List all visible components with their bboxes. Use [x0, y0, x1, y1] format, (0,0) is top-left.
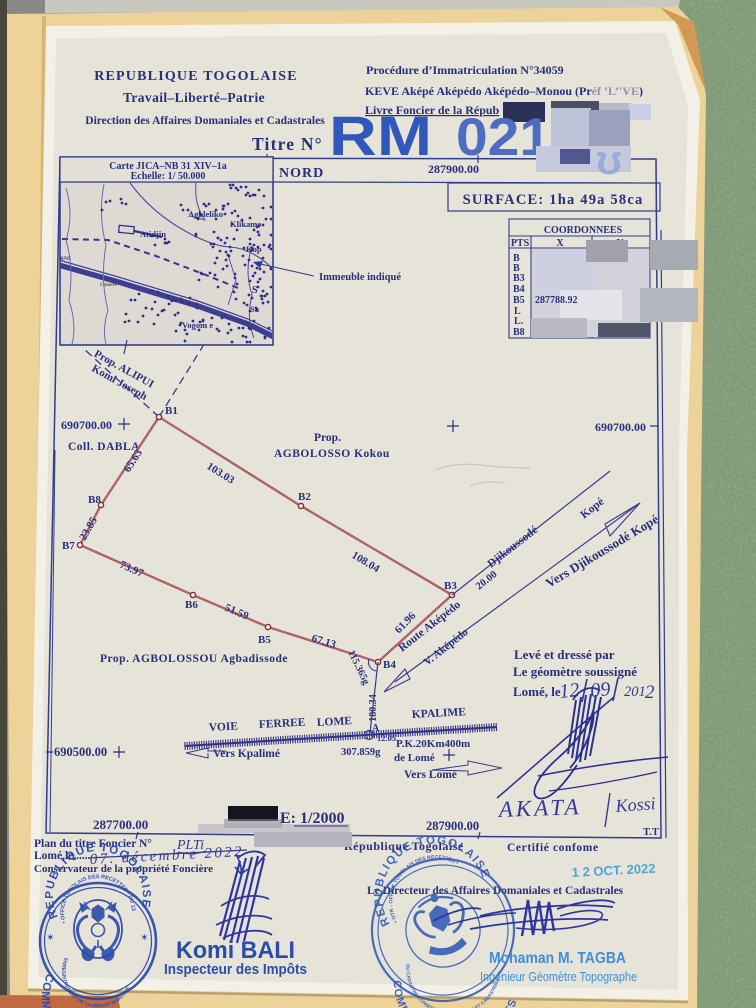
svg-text:B7: B7 [62, 540, 75, 552]
svg-text:287900.00: 287900.00 [426, 819, 479, 833]
svg-text:Kossi: Kossi [614, 793, 656, 816]
svg-text:B4: B4 [383, 659, 396, 671]
svg-text:B6: B6 [185, 599, 198, 611]
svg-text:LOME: LOME [317, 715, 353, 729]
svg-text:B5: B5 [513, 295, 525, 306]
svg-text:B8: B8 [513, 327, 525, 338]
svg-text:690700.00: 690700.00 [61, 418, 112, 432]
svg-text:REPUBLIQUE TOGOLAISE: REPUBLIQUE TOGOLAISE [94, 69, 298, 84]
svg-text:Levé et dressé par: Levé et dressé par [514, 647, 615, 662]
svg-text:✶: ✶ [141, 933, 148, 942]
svg-text:PTS: PTS [511, 238, 530, 249]
svg-text:201: 201 [624, 684, 646, 700]
svg-text:Prop.: Prop. [314, 432, 341, 444]
svg-text:RM: RM [329, 104, 432, 167]
svg-text:VOIE: VOIE [209, 720, 239, 734]
svg-text:12.05: 12.05 [377, 733, 396, 743]
svg-text:287900.00: 287900.00 [428, 162, 479, 176]
svg-text:✶: ✶ [47, 933, 54, 942]
svg-text:Mohaman M. TAGBA: Mohaman M. TAGBA [489, 950, 626, 967]
svg-text:B3: B3 [513, 273, 525, 284]
svg-text:12: 12 [558, 679, 580, 703]
svg-text:307.859g: 307.859g [341, 747, 381, 758]
svg-text:NORD: NORD [279, 166, 324, 181]
svg-text:Lomé, le: Lomé, le [513, 684, 561, 699]
svg-text:Camere: Camere [100, 283, 118, 288]
svg-text:COORDONNEES: COORDONNEES [544, 225, 623, 236]
svg-text:B4: B4 [513, 284, 525, 295]
svg-text:287788.92: 287788.92 [535, 295, 578, 306]
svg-text:Travail–Liberté–Patrie: Travail–Liberté–Patrie [123, 90, 265, 105]
svg-text:Procédure d’Immatriculation N°: Procédure d’Immatriculation N°34059 [366, 63, 564, 77]
svg-text:Coll. DABLA: Coll. DABLA [68, 441, 140, 453]
svg-text:RN5: RN5 [60, 256, 71, 262]
svg-text:Kop: Kop [246, 244, 262, 254]
svg-text:690500.00: 690500.00 [54, 745, 107, 759]
svg-text:180.34: 180.34 [368, 694, 379, 722]
svg-text:SURFACE: 1ha 49a 58ca: SURFACE: 1ha 49a 58ca [463, 192, 644, 208]
svg-text:Prop. AGBOLOSSOU Agbadissode: Prop. AGBOLOSSOU Agbadissode [100, 653, 288, 665]
svg-text:Sa: Sa [250, 304, 260, 314]
svg-text:Komi BALI: Komi BALI [176, 937, 295, 964]
svg-text:Titre N°: Titre N° [252, 134, 323, 154]
svg-text:Ingénieur Géomètre Topographe: Ingénieur Géomètre Topographe [480, 970, 637, 984]
svg-text:Certifié confome: Certifié confome [507, 842, 599, 854]
svg-text:de Lomé: de Lomé [394, 752, 435, 764]
svg-text:B8: B8 [88, 494, 101, 506]
svg-text:X: X [556, 238, 564, 249]
svg-text:E: 1/2000: E: 1/2000 [280, 810, 344, 827]
svg-text:Agbleliko: Agbleliko [188, 209, 223, 219]
svg-text:S: S [252, 285, 258, 296]
svg-text:B5: B5 [258, 634, 271, 646]
svg-text:T.T: T.T [643, 827, 659, 838]
svg-text:Klikame: Klikame [230, 219, 261, 229]
svg-text:Direction des Affaires Domania: Direction des Affaires Domaniales et Cad… [85, 115, 325, 127]
svg-text:B1: B1 [165, 405, 178, 417]
svg-text:L.: L. [514, 316, 524, 327]
svg-text:287700.00: 287700.00 [93, 817, 148, 832]
svg-text:Vogom e: Vogom e [182, 320, 213, 330]
svg-text:B2: B2 [298, 491, 311, 503]
svg-text:FERREE: FERREE [259, 717, 307, 731]
svg-text:Le géomètre soussigné: Le géomètre soussigné [513, 664, 637, 679]
svg-text:690700.00: 690700.00 [595, 420, 646, 434]
svg-text:B3: B3 [444, 580, 457, 592]
svg-text:2: 2 [645, 682, 655, 703]
svg-text:P.K.20Km400m: P.K.20Km400m [396, 738, 470, 750]
svg-text:Immeuble indiqué: Immeuble indiqué [319, 272, 401, 283]
svg-text:AGBOLOSSO Kokou: AGBOLOSSO Kokou [274, 448, 390, 460]
svg-text:Echelle: 1/ 50.000: Echelle: 1/ 50.000 [131, 171, 206, 182]
svg-text:ʊ: ʊ [596, 136, 622, 183]
svg-text:AKATA: AKATA [496, 794, 582, 822]
svg-text:Atidjin: Atidjin [140, 229, 166, 239]
svg-text:Vers Kpalimé: Vers Kpalimé [213, 748, 280, 760]
svg-text:Inspecteur des Impôts: Inspecteur des Impôts [164, 961, 307, 978]
